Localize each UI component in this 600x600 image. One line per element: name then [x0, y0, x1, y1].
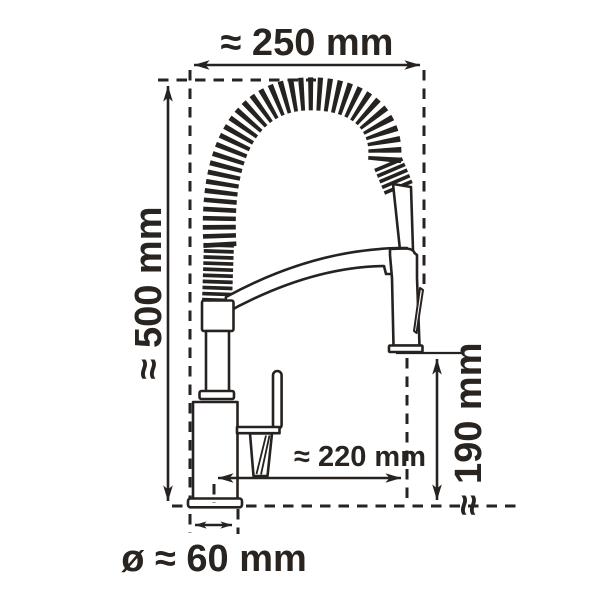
faucet-column [193, 301, 238, 500]
column-flange [200, 391, 235, 399]
dimension-label-width-overall: ≈ 250 mm [221, 22, 394, 64]
spray-head-outlet [389, 346, 423, 353]
spray-head [389, 249, 423, 353]
lever-handle [237, 371, 282, 476]
hose-end [393, 184, 413, 250]
spring-coil-arch [219, 94, 385, 247]
dimension-height-overall: ≈ 500 mm [128, 86, 170, 501]
dimension-base-diameter: ø ≈ 60 mm [121, 509, 307, 580]
handle-rod [273, 371, 282, 429]
dimension-label-height-overall: ≈ 500 mm [128, 207, 170, 380]
dimension-width-overall: ≈ 250 mm [158, 22, 424, 286]
spout-arm [224, 248, 407, 314]
dimension-outlet-height: ≈ 190 mm [396, 343, 490, 516]
spring-coil-dense-left [217, 243, 219, 302]
dimension-label-base-diameter: ø ≈ 60 mm [121, 538, 307, 580]
dimension-label-spout-reach: ≈ 220 mm [294, 441, 426, 473]
dimension-label-outlet-height: ≈ 190 mm [448, 343, 490, 516]
riser-tube [206, 331, 229, 392]
faucet-dimension-diagram: ≈ 250 mm ≈ 500 mm ≈ 190 mm ≈ 220 mm ø ≈ … [0, 0, 600, 600]
spout-collar [202, 301, 234, 332]
diagram-canvas: ≈ 250 mm ≈ 500 mm ≈ 190 mm ≈ 220 mm ø ≈ … [0, 0, 600, 600]
dimension-spout-reach: ≈ 220 mm [214, 441, 426, 503]
dimension-annotations: ≈ 250 mm ≈ 500 mm ≈ 190 mm ≈ 220 mm ø ≈ … [121, 22, 490, 580]
